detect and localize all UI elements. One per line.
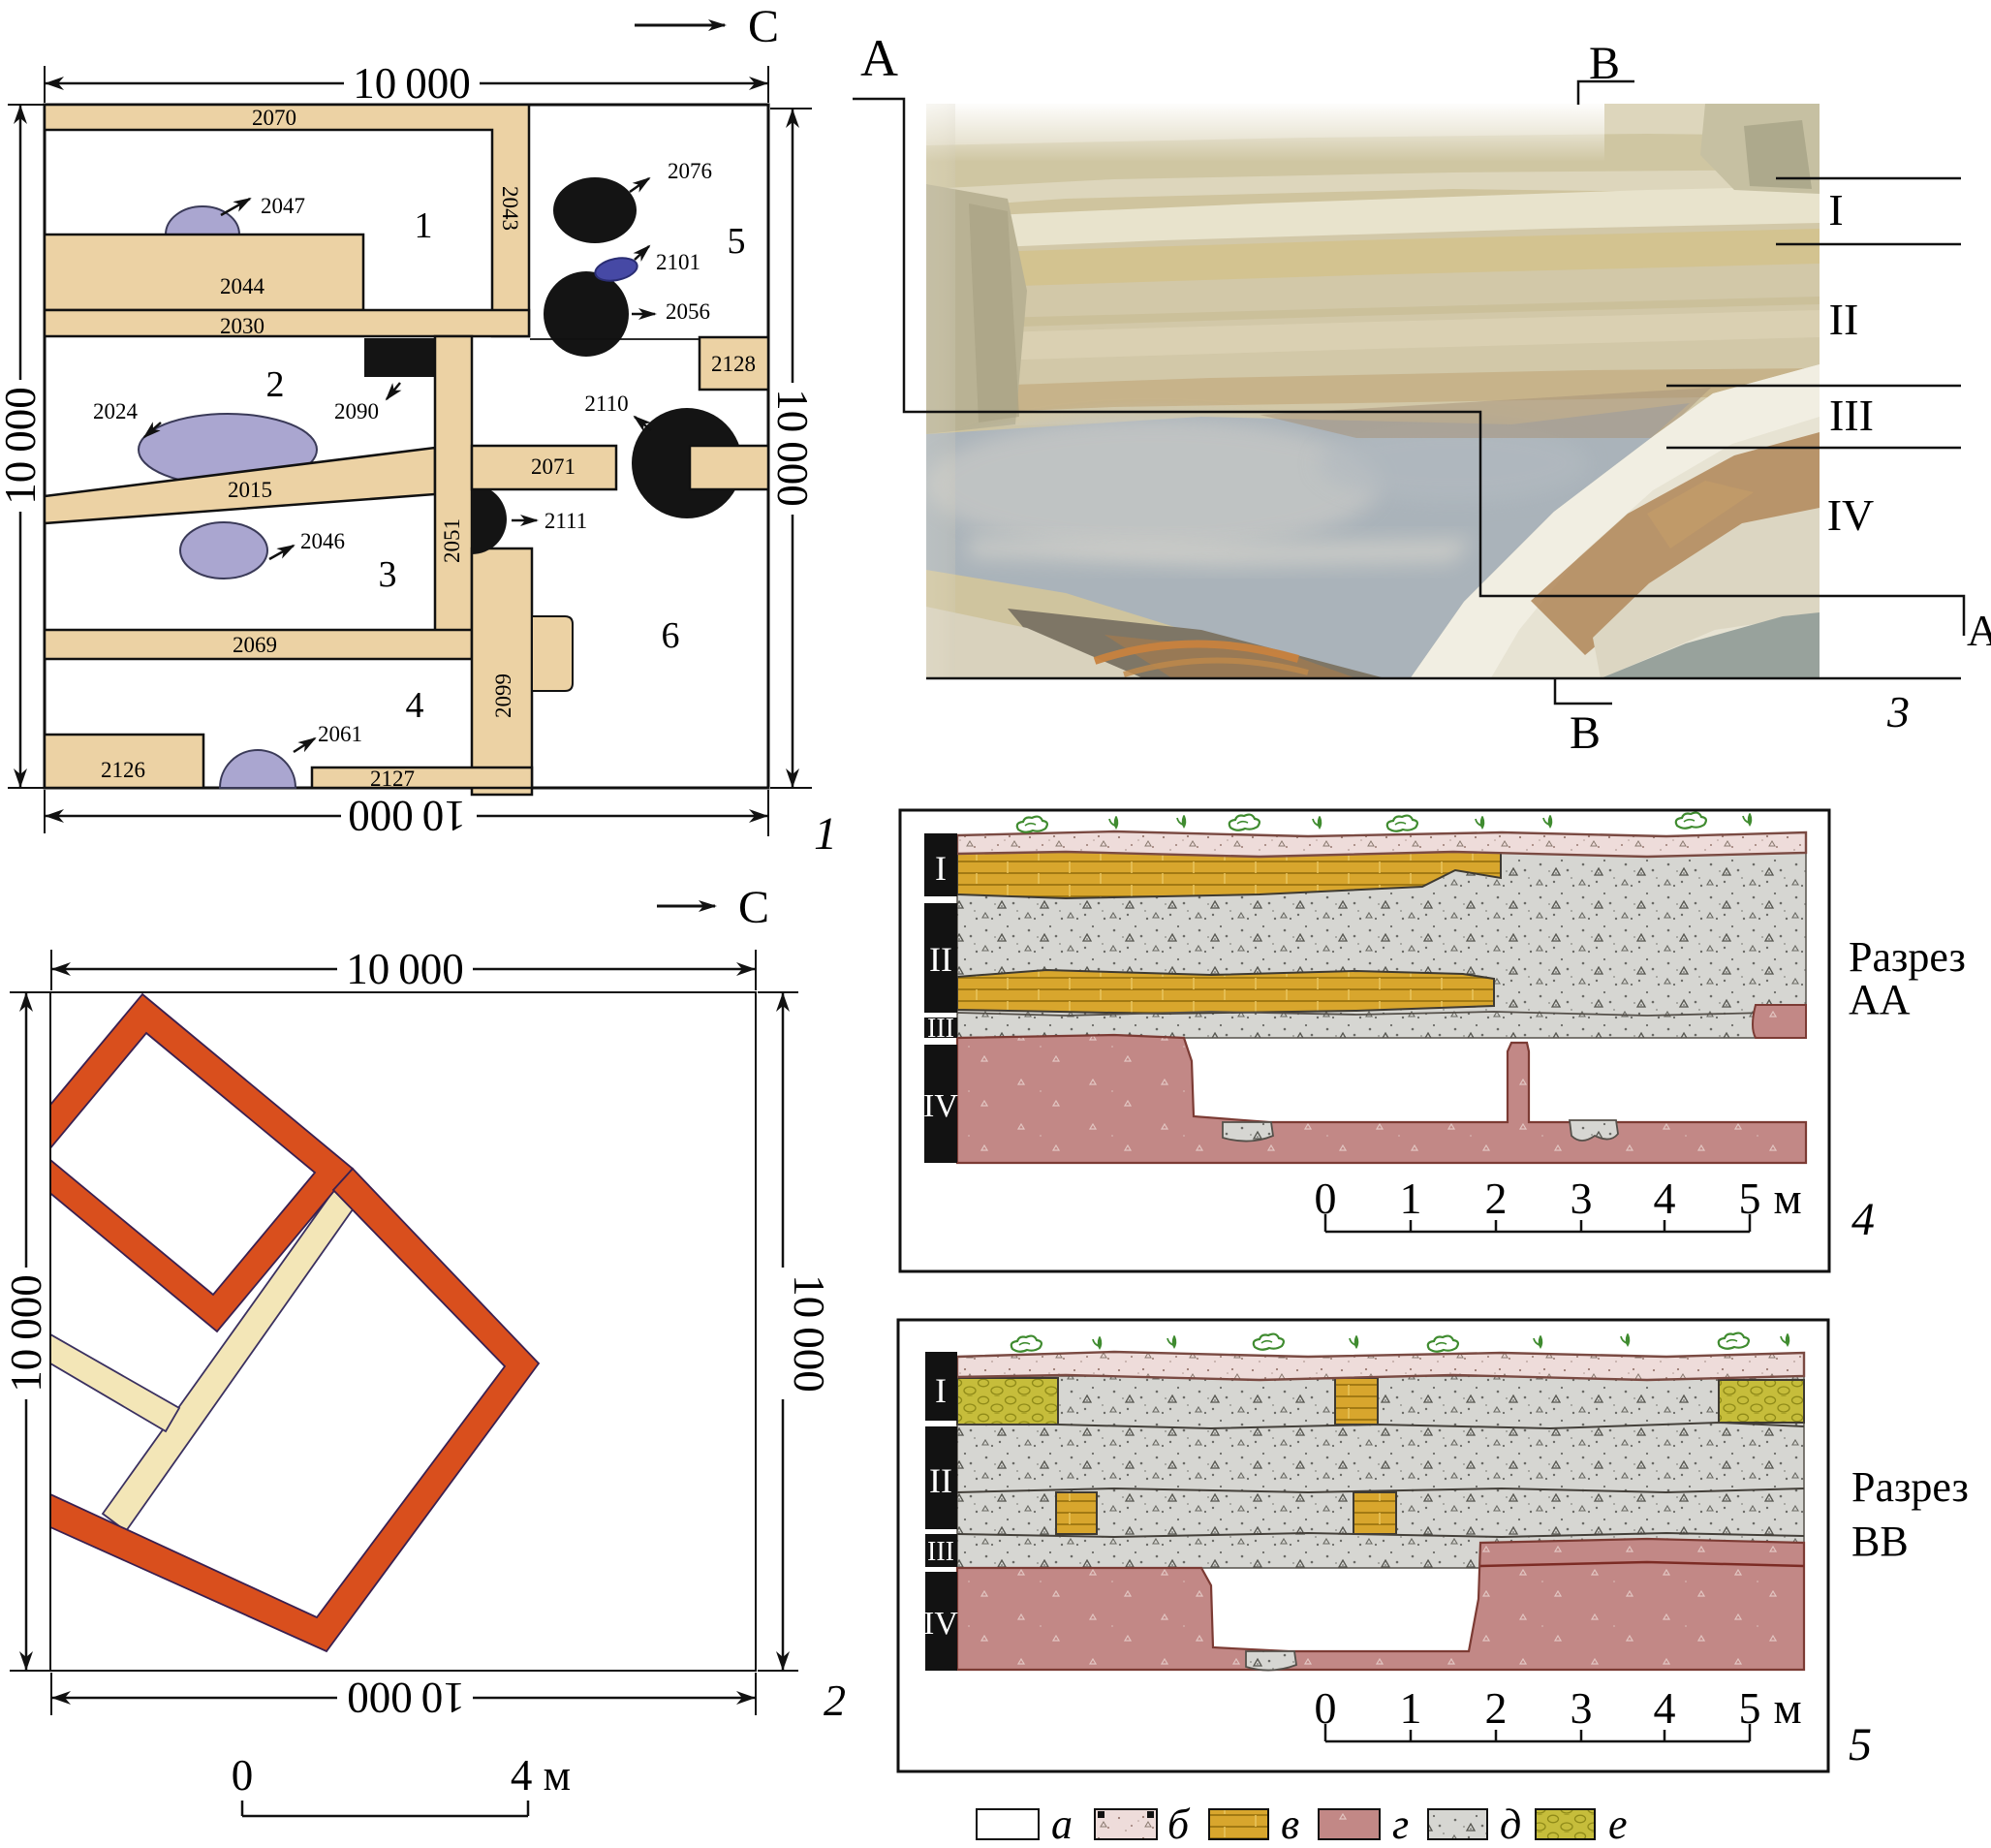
- svg-text:2076: 2076: [668, 159, 712, 183]
- svg-text:3: 3: [1571, 1683, 1593, 1733]
- svg-text:2047: 2047: [261, 194, 305, 218]
- svg-text:10 000: 10 000: [348, 792, 466, 840]
- svg-text:B: B: [1589, 38, 1620, 89]
- svg-text:2: 2: [1485, 1683, 1508, 1733]
- svg-text:б: б: [1167, 1801, 1191, 1848]
- svg-text:2126: 2126: [101, 758, 145, 782]
- svg-text:10 000: 10 000: [2, 1274, 50, 1393]
- svg-text:3: 3: [1886, 687, 1910, 736]
- svg-text:III: III: [1829, 391, 1874, 440]
- svg-text:10 000: 10 000: [347, 1674, 465, 1722]
- svg-text:2: 2: [824, 1676, 846, 1725]
- svg-text:4: 4: [1851, 1194, 1875, 1245]
- svg-text:10 000: 10 000: [768, 389, 817, 507]
- svg-text:2099: 2099: [491, 673, 515, 718]
- svg-text:2061: 2061: [318, 722, 362, 746]
- svg-text:2069: 2069: [233, 633, 277, 657]
- svg-text:A: A: [860, 29, 898, 87]
- svg-text:6: 6: [662, 615, 680, 656]
- svg-text:в: в: [1281, 1801, 1299, 1848]
- svg-text:10 000: 10 000: [353, 59, 471, 108]
- svg-text:IV: IV: [1827, 490, 1875, 540]
- svg-text:5: 5: [728, 221, 746, 262]
- svg-text:1: 1: [1400, 1174, 1422, 1223]
- svg-text:д: д: [1500, 1801, 1521, 1848]
- svg-text:A: A: [1967, 606, 1991, 655]
- svg-text:2030: 2030: [220, 314, 264, 338]
- svg-text:0: 0: [232, 1751, 254, 1800]
- svg-text:II: II: [929, 1461, 952, 1500]
- svg-text:2: 2: [266, 364, 285, 405]
- svg-text:м: м: [1773, 1174, 1801, 1223]
- svg-text:2043: 2043: [498, 186, 522, 231]
- svg-text:1: 1: [1400, 1683, 1422, 1733]
- svg-text:2070: 2070: [252, 106, 296, 130]
- svg-text:г: г: [1392, 1801, 1409, 1848]
- svg-text:1: 1: [415, 205, 433, 246]
- svg-text:5: 5: [1849, 1719, 1872, 1770]
- svg-text:2127: 2127: [370, 767, 415, 791]
- svg-text:III: III: [927, 1014, 954, 1044]
- svg-text:а: а: [1051, 1801, 1073, 1848]
- svg-text:3: 3: [379, 554, 397, 595]
- svg-text:2051: 2051: [440, 518, 464, 563]
- svg-text:BB: BB: [1851, 1518, 1909, 1565]
- svg-text:2101: 2101: [656, 250, 700, 274]
- svg-text:4 м: 4 м: [511, 1751, 571, 1800]
- svg-text:м: м: [1773, 1683, 1801, 1733]
- svg-text:2071: 2071: [531, 454, 576, 479]
- svg-text:3: 3: [1571, 1174, 1593, 1223]
- svg-text:е: е: [1608, 1801, 1628, 1848]
- svg-text:10 000: 10 000: [346, 945, 464, 993]
- svg-text:4: 4: [406, 685, 424, 726]
- svg-text:4: 4: [1654, 1683, 1676, 1733]
- svg-text:2128: 2128: [711, 352, 756, 376]
- svg-text:4: 4: [1654, 1174, 1676, 1223]
- svg-text:2044: 2044: [220, 274, 265, 298]
- svg-text:B: B: [1570, 707, 1601, 759]
- svg-text:10 000: 10 000: [0, 387, 45, 505]
- svg-text:Разрез: Разрез: [1851, 1463, 1969, 1511]
- svg-text:AA: AA: [1849, 976, 1911, 1023]
- svg-text:2: 2: [1485, 1174, 1508, 1223]
- svg-text:10 000: 10 000: [785, 1274, 833, 1393]
- svg-text:C: C: [738, 882, 769, 933]
- svg-text:2111: 2111: [544, 509, 587, 533]
- svg-text:I: I: [935, 1371, 947, 1410]
- svg-text:2046: 2046: [300, 529, 345, 553]
- svg-text:IV: IV: [923, 1606, 958, 1642]
- svg-text:2110: 2110: [584, 392, 628, 416]
- svg-text:2090: 2090: [334, 399, 379, 423]
- svg-text:Разрез: Разрез: [1849, 933, 1966, 981]
- svg-text:C: C: [748, 1, 779, 52]
- svg-text:IV: IV: [923, 1088, 958, 1124]
- svg-text:II: II: [929, 940, 952, 979]
- svg-text:2056: 2056: [666, 299, 710, 324]
- svg-text:2024: 2024: [93, 399, 139, 423]
- svg-text:II: II: [1829, 295, 1859, 344]
- svg-text:I: I: [1828, 185, 1843, 235]
- svg-text:I: I: [935, 849, 947, 888]
- svg-text:III: III: [927, 1537, 954, 1567]
- svg-text:2015: 2015: [228, 478, 272, 502]
